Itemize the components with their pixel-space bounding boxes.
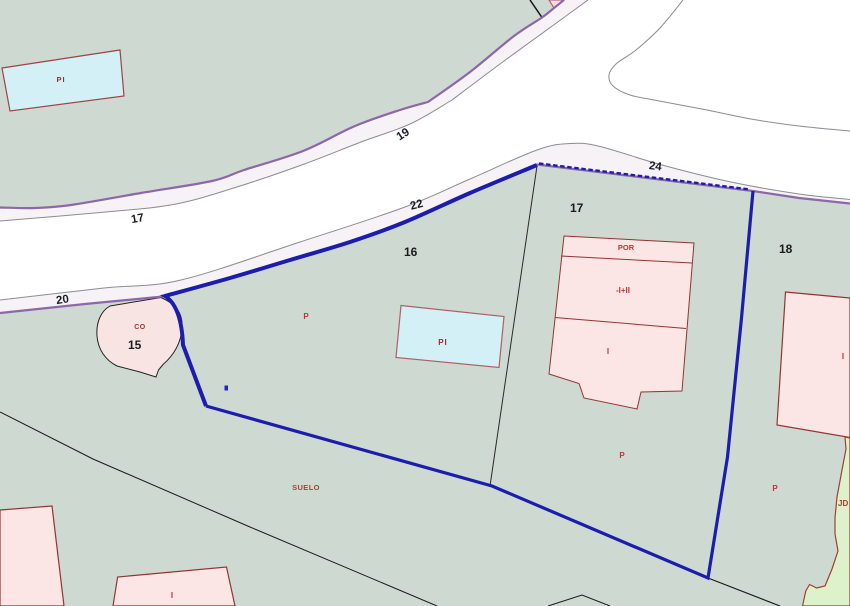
- svg-text:JD: JD: [838, 499, 848, 508]
- svg-text:P: P: [772, 484, 778, 493]
- svg-text:17: 17: [130, 212, 145, 226]
- svg-text:P: P: [619, 451, 625, 460]
- svg-text:PI: PI: [438, 338, 448, 347]
- svg-text:SUELO: SUELO: [292, 483, 320, 492]
- svg-text:I: I: [842, 352, 844, 361]
- svg-text:17: 17: [570, 201, 584, 215]
- svg-text:15: 15: [128, 338, 142, 352]
- svg-text:20: 20: [55, 293, 69, 307]
- svg-text:18: 18: [779, 242, 793, 256]
- svg-text:16: 16: [404, 245, 418, 259]
- svg-text:-I+II: -I+II: [616, 286, 630, 295]
- svg-text:P: P: [303, 312, 309, 321]
- svg-text:POR: POR: [618, 243, 635, 252]
- svg-text:I: I: [607, 347, 609, 356]
- svg-text:24: 24: [648, 160, 663, 174]
- svg-text:CO: CO: [134, 324, 146, 331]
- svg-text:PI: PI: [56, 75, 65, 84]
- svg-text:I: I: [171, 591, 173, 600]
